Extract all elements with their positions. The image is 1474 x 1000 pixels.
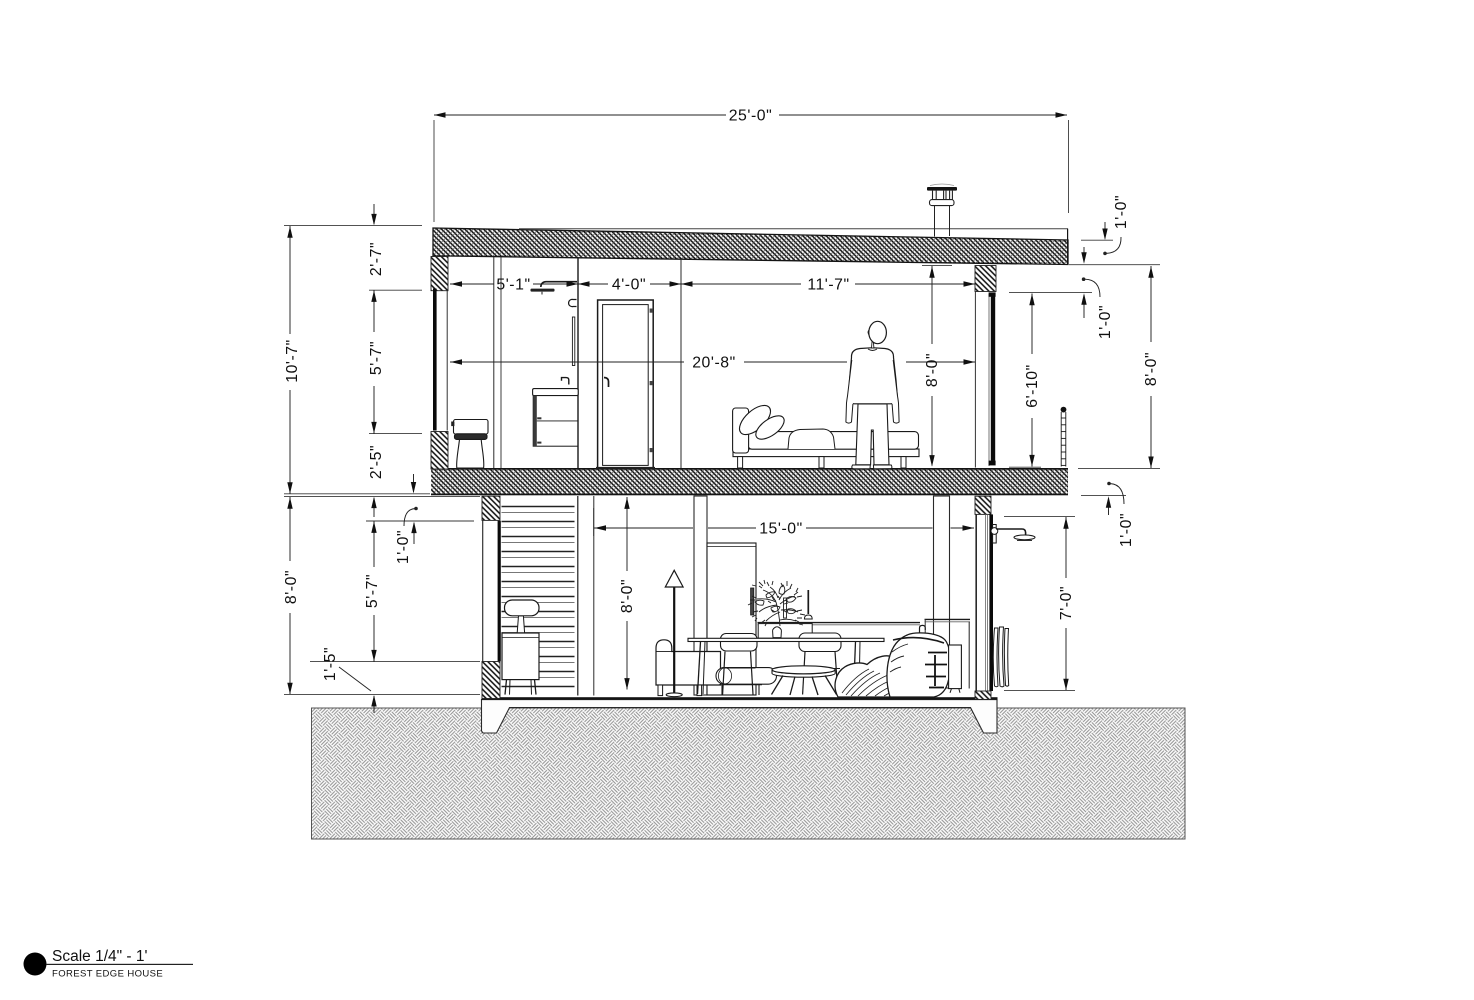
svg-text:8'-0": 8'-0": [1143, 352, 1160, 386]
svg-text:8'-0": 8'-0": [924, 353, 941, 387]
svg-text:11'-7": 11'-7": [807, 277, 849, 294]
svg-text:25'-0": 25'-0": [729, 108, 773, 125]
svg-text:20'-8": 20'-8": [692, 355, 736, 372]
svg-text:1'-0": 1'-0": [1118, 513, 1135, 547]
svg-text:10'-7": 10'-7": [284, 339, 301, 383]
svg-text:2'-5": 2'-5": [368, 445, 385, 479]
svg-text:1'-0": 1'-0": [395, 530, 412, 564]
svg-text:8'-0": 8'-0": [619, 579, 636, 613]
svg-text:7'-0": 7'-0": [1058, 586, 1075, 620]
svg-text:6'-10": 6'-10": [1024, 364, 1041, 408]
svg-text:Scale 1/4" - 1': Scale 1/4" - 1': [52, 948, 148, 965]
svg-text:FOREST EDGE HOUSE: FOREST EDGE HOUSE: [52, 969, 163, 980]
svg-text:1'-5": 1'-5": [322, 647, 339, 681]
svg-text:5'-7": 5'-7": [364, 574, 381, 608]
svg-text:5'-1": 5'-1": [496, 277, 530, 294]
svg-text:1'-0": 1'-0": [1113, 195, 1130, 229]
svg-text:2'-7": 2'-7": [368, 242, 385, 276]
svg-text:1'-0": 1'-0": [1097, 305, 1114, 339]
svg-text:15'-0": 15'-0": [759, 521, 803, 538]
svg-text:5'-7": 5'-7": [368, 341, 385, 375]
svg-text:8'-0": 8'-0": [283, 570, 300, 604]
svg-text:4'-0": 4'-0": [612, 277, 646, 294]
